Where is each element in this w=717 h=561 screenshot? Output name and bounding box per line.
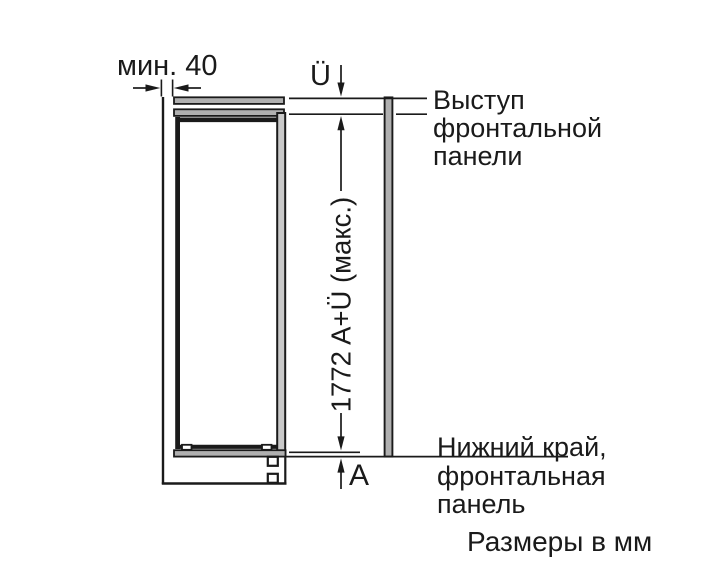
height-arrowhead-up	[337, 116, 344, 130]
overhang-dimension	[337, 65, 344, 97]
hinge-block-upper	[268, 457, 278, 466]
bottom-gap-dimension-label: A	[349, 461, 369, 491]
top-vent-bar-upper	[174, 97, 284, 104]
top-vent-bar-lower	[174, 109, 284, 116]
cabinet-drawing	[162, 97, 287, 484]
front-panel-protrusion-label: Выступ фронтальной панели	[433, 86, 602, 170]
overhang-arrowhead-down	[337, 83, 344, 97]
bottom-edge-label-line1: Нижний край,	[437, 433, 607, 462]
min-gap-dimension-label: мин. 40	[117, 52, 218, 81]
niche-right-front-frame	[277, 113, 285, 452]
front-panel-protrusion-label-line3: панели	[433, 142, 602, 170]
appliance-foot-left	[182, 445, 192, 450]
bottom-gap-arrowhead-up	[337, 458, 344, 472]
appliance-foot-right	[262, 445, 272, 450]
niche-base-bar	[174, 450, 286, 456]
overhang-dimension-label: Ü	[310, 62, 331, 91]
bottom-gap-dimension	[337, 458, 344, 489]
bottom-edge-label: Нижний край, фронтальная панель	[437, 433, 607, 519]
height-arrowhead-down	[337, 436, 344, 450]
height-dimension-label: 1772 A+Ü (макс.)	[325, 185, 358, 425]
front-panel-protrusion-label-line1: Выступ	[433, 86, 602, 114]
min-gap-dimension	[133, 80, 201, 97]
front-panel-protrusion-label-line2: фронтальной	[433, 114, 602, 142]
min-gap-arrowhead-left	[146, 84, 161, 91]
min-gap-arrowhead-right	[174, 84, 189, 91]
bottom-edge-label-line2: фронтальная	[437, 462, 607, 491]
hinge-block-lower	[268, 474, 278, 483]
installation-dimensions-diagram: мин. 40 Ü Выступ фронтальной панели 1772…	[0, 0, 717, 561]
front-panel	[385, 97, 393, 456]
units-label: Размеры в мм	[467, 528, 652, 556]
bottom-edge-label-line3: панель	[437, 490, 607, 519]
